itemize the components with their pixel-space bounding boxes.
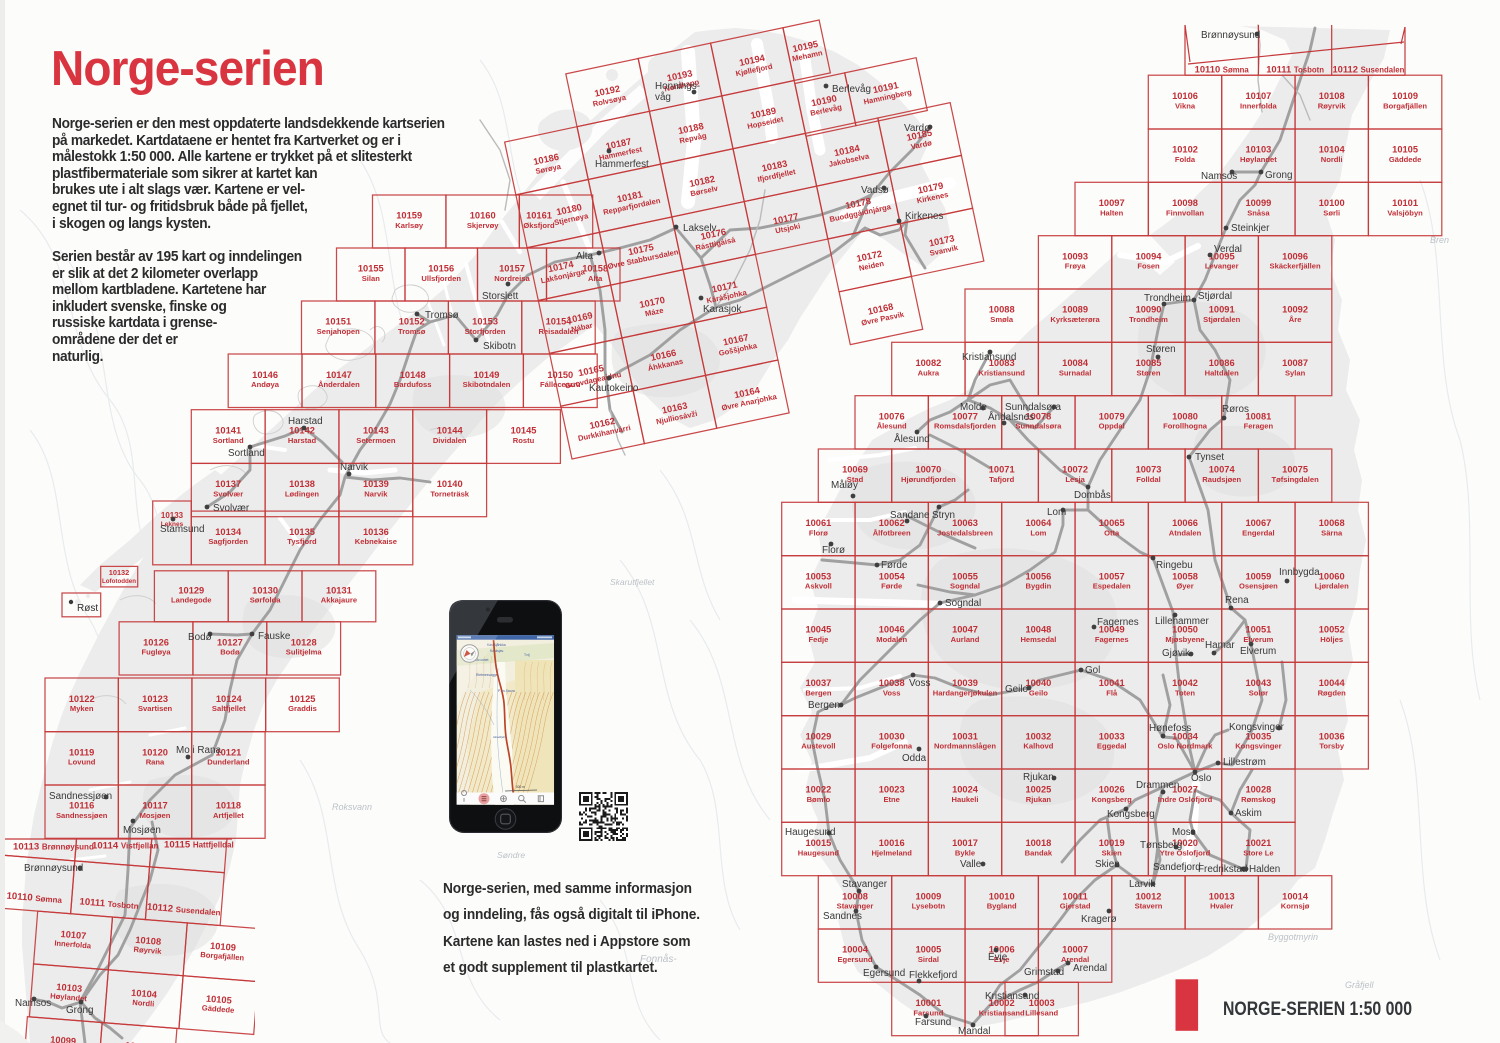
- svg-text:Farsund: Farsund: [913, 1008, 943, 1017]
- svg-text:Lom: Lom: [1030, 528, 1046, 537]
- svg-text:Silan: Silan: [362, 274, 381, 283]
- svg-text:10104: 10104: [1319, 145, 1346, 155]
- svg-text:Florø: Florø: [809, 528, 828, 537]
- svg-text:Tysfjord: Tysfjord: [287, 537, 317, 546]
- svg-text:Hjørundfjorden: Hjørundfjorden: [901, 475, 956, 484]
- svg-text:Storfjorden: Storfjorden: [465, 327, 506, 336]
- svg-text:Røst: Røst: [77, 603, 98, 614]
- svg-text:10043: 10043: [1245, 678, 1271, 688]
- svg-text:Smøla: Smøla: [990, 315, 1014, 324]
- svg-text:Askvoll: Askvoll: [805, 582, 832, 591]
- svg-text:Raudsjøen: Raudsjøen: [1202, 475, 1241, 484]
- svg-text:10148: 10148: [400, 370, 426, 380]
- svg-text:Rena: Rena: [1225, 595, 1249, 606]
- svg-text:Trondheim: Trondheim: [1129, 315, 1168, 324]
- svg-text:Vadsø: Vadsø: [861, 185, 889, 196]
- svg-text:Folgefonna: Folgefonna: [871, 742, 913, 751]
- svg-text:10098: 10098: [1172, 198, 1198, 208]
- svg-text:Odda: Odda: [902, 753, 927, 764]
- svg-text:Halden: Halden: [1249, 864, 1280, 875]
- svg-text:10126: 10126: [143, 637, 169, 647]
- svg-text:Mosjøen: Mosjøen: [140, 811, 171, 820]
- svg-text:10080: 10080: [1172, 411, 1198, 421]
- svg-text:Skarutfjellet: Skarutfjellet: [610, 577, 655, 587]
- svg-text:Berlevåg: Berlevåg: [832, 84, 871, 95]
- svg-text:Myken: Myken: [70, 704, 94, 713]
- svg-text:Harstad: Harstad: [288, 436, 317, 445]
- svg-text:Byggotmyrin: Byggotmyrin: [1268, 932, 1318, 942]
- svg-text:10061: 10061: [805, 518, 831, 528]
- svg-text:10008: 10008: [842, 891, 868, 901]
- svg-text:10007: 10007: [1062, 945, 1088, 955]
- svg-text:Måløy: Måløy: [831, 480, 858, 491]
- svg-text:10118: 10118: [216, 801, 241, 811]
- svg-text:Sulitjelma: Sulitjelma: [286, 648, 323, 657]
- svg-text:Mo i Rana: Mo i Rana: [176, 745, 222, 756]
- svg-text:Førde: Førde: [881, 560, 908, 571]
- svg-text:10012: 10012: [1136, 891, 1162, 901]
- svg-text:Sørli: Sørli: [1323, 208, 1340, 217]
- svg-text:Nordli: Nordli: [1321, 155, 1343, 164]
- svg-text:10029: 10029: [805, 731, 831, 741]
- svg-text:Hvaler: Hvaler: [1210, 902, 1233, 911]
- svg-text:Folldal: Folldal: [1136, 475, 1160, 484]
- svg-text:Molde: Molde: [960, 402, 987, 413]
- svg-text:Sirdal: Sirdal: [918, 955, 939, 964]
- svg-text:Stamsund: Stamsund: [160, 524, 204, 535]
- svg-text:Sortland: Sortland: [228, 448, 265, 459]
- svg-text:Egersund: Egersund: [863, 968, 905, 979]
- svg-text:Fugløya: Fugløya: [141, 648, 171, 657]
- svg-text:Sandnessjøen: Sandnessjøen: [49, 791, 112, 802]
- svg-text:Farsund: Farsund: [915, 1017, 951, 1028]
- svg-text:Skibotndalen: Skibotndalen: [463, 380, 511, 389]
- svg-text:10016: 10016: [879, 838, 905, 848]
- svg-text:Moss: Moss: [1172, 827, 1196, 838]
- svg-text:Hamar: Hamar: [1205, 640, 1235, 651]
- svg-text:10152: 10152: [399, 317, 425, 327]
- svg-text:Bodø: Bodø: [188, 632, 212, 643]
- svg-text:Lofotodden: Lofotodden: [102, 578, 136, 585]
- svg-text:Røgden: Røgden: [1318, 688, 1347, 697]
- svg-text:Ljørdalen: Ljørdalen: [1315, 582, 1350, 591]
- svg-text:Snåsa: Snåsa: [1247, 208, 1270, 217]
- svg-text:Kyrksæterøra: Kyrksæterøra: [1050, 315, 1100, 324]
- svg-text:10143: 10143: [363, 426, 389, 436]
- svg-text:10021: 10021: [1245, 838, 1271, 848]
- svg-text:Hammerfest: Hammerfest: [595, 159, 649, 170]
- svg-text:Stjørdal: Stjørdal: [1198, 291, 1232, 302]
- svg-text:Lillestrøm: Lillestrøm: [1223, 757, 1266, 768]
- svg-text:Rjukan: Rjukan: [1023, 772, 1054, 783]
- svg-text:10048: 10048: [1025, 625, 1051, 635]
- svg-text:10105: 10105: [1392, 145, 1418, 155]
- svg-text:Tøfsingdalen: Tøfsingdalen: [1271, 475, 1319, 484]
- svg-text:Flekkefjord: Flekkefjord: [909, 970, 957, 981]
- svg-text:Bømlo: Bømlo: [807, 795, 831, 804]
- svg-text:10109: 10109: [1392, 91, 1418, 101]
- svg-text:Stryn: Stryn: [932, 510, 955, 521]
- svg-text:10066: 10066: [1172, 518, 1198, 528]
- svg-text:Kongsvinger: Kongsvinger: [1235, 742, 1281, 751]
- svg-text:10119: 10119: [69, 747, 94, 757]
- svg-text:Lillehammer: Lillehammer: [1155, 616, 1209, 627]
- svg-text:10132: 10132: [109, 568, 130, 577]
- svg-text:10138: 10138: [289, 479, 315, 489]
- svg-text:10087: 10087: [1282, 358, 1308, 368]
- svg-text:Egersund: Egersund: [837, 955, 872, 964]
- svg-text:Ånderdalen: Ånderdalen: [318, 380, 360, 389]
- svg-text:Geilo: Geilo: [1005, 684, 1029, 695]
- svg-text:10082: 10082: [915, 358, 941, 368]
- svg-text:Akselfjell: Akselfjell: [493, 735, 505, 739]
- svg-text:10053: 10053: [805, 571, 831, 581]
- svg-text:Geilo: Geilo: [1029, 688, 1048, 697]
- svg-text:Svolvær: Svolvær: [213, 489, 243, 498]
- svg-text:Førde: Førde: [881, 582, 902, 591]
- svg-text:Valle: Valle: [960, 859, 982, 870]
- svg-text:Grong: Grong: [66, 1005, 93, 1016]
- svg-text:Rjukan: Rjukan: [1026, 795, 1052, 804]
- svg-text:Karasjok: Karasjok: [703, 304, 741, 315]
- svg-text:10026: 10026: [1099, 785, 1125, 795]
- svg-text:Haltdalen: Haltdalen: [1205, 368, 1240, 377]
- svg-text:10079: 10079: [1099, 411, 1125, 421]
- svg-text:Brønnøysund: Brønnøysund: [1201, 30, 1260, 41]
- svg-text:10045: 10045: [805, 625, 831, 635]
- svg-text:10059: 10059: [1245, 571, 1271, 581]
- svg-text:Tønsberg: Tønsberg: [1140, 840, 1182, 851]
- svg-text:Andøya: Andøya: [251, 380, 280, 389]
- svg-text:10114 Vistfjellan: 10114 Vistfjellan: [92, 841, 159, 852]
- svg-text:10036: 10036: [1319, 731, 1345, 741]
- svg-text:Namsos: Namsos: [15, 998, 51, 1009]
- svg-text:10091: 10091: [1209, 305, 1235, 315]
- svg-text:10108: 10108: [1319, 91, 1345, 101]
- svg-text:10054: 10054: [879, 571, 906, 581]
- svg-text:Bygland: Bygland: [987, 902, 1017, 911]
- svg-text:10038: 10038: [879, 678, 905, 688]
- svg-text:10157: 10157: [499, 264, 525, 274]
- svg-text:Skibotn: Skibotn: [483, 341, 516, 352]
- svg-text:10047: 10047: [952, 625, 978, 635]
- svg-text:Svolvær: Svolvær: [213, 503, 250, 514]
- svg-text:10074: 10074: [1209, 465, 1236, 475]
- svg-text:Øyer: Øyer: [1176, 582, 1193, 591]
- svg-text:Lysebotn: Lysebotn: [912, 902, 946, 911]
- svg-text:Evje: Evje: [988, 952, 1008, 963]
- svg-text:10115 Hattfjelldal: 10115 Hattfjelldal: [164, 840, 234, 851]
- svg-text:Røros: Røros: [1222, 404, 1249, 415]
- svg-text:10149: 10149: [474, 370, 500, 380]
- svg-text:Arendal: Arendal: [1073, 963, 1107, 974]
- svg-text:10100: 10100: [1319, 198, 1345, 208]
- svg-text:Støren: Støren: [1136, 368, 1160, 377]
- svg-text:10067: 10067: [1245, 518, 1271, 528]
- svg-text:Setermoen: Setermoen: [356, 436, 396, 445]
- svg-text:Tvtj: Tvtj: [524, 653, 530, 657]
- svg-text:10028: 10028: [1245, 785, 1271, 795]
- svg-text:Elverum: Elverum: [1243, 635, 1273, 644]
- svg-text:10023: 10023: [879, 785, 905, 795]
- svg-text:Stavern: Stavern: [1135, 902, 1163, 911]
- svg-text:10139: 10139: [363, 479, 389, 489]
- svg-text:10085: 10085: [1136, 358, 1162, 368]
- svg-text:Honnings-: Honnings-: [655, 81, 700, 92]
- svg-text:Frøya: Frøya: [1065, 262, 1086, 271]
- svg-text:Romsdalsfjorden: Romsdalsfjorden: [934, 422, 996, 431]
- svg-text:Ålfotbreen: Ålfotbreen: [873, 528, 911, 537]
- svg-text:Trondheim: Trondheim: [1144, 293, 1191, 304]
- svg-text:Särna: Särna: [1321, 528, 1343, 537]
- svg-text:Bergen: Bergen: [805, 688, 832, 697]
- svg-text:10092: 10092: [1282, 305, 1308, 315]
- svg-text:10096: 10096: [1282, 251, 1308, 261]
- svg-text:Narvik: Narvik: [340, 462, 368, 473]
- svg-text:Askim: Askim: [1235, 808, 1262, 819]
- svg-text:Haukeli: Haukeli: [951, 795, 978, 804]
- svg-text:10004: 10004: [842, 945, 869, 955]
- svg-text:10158: 10158: [582, 264, 608, 274]
- svg-text:Steinkjer: Steinkjer: [1231, 223, 1270, 234]
- svg-text:10113 Brønnøysund: 10113 Brønnøysund: [13, 842, 94, 853]
- svg-text:10161: 10161: [526, 211, 552, 221]
- svg-text:10041: 10041: [1099, 678, 1125, 688]
- svg-text:10001: 10001: [915, 998, 941, 1008]
- svg-text:Mosjøen: Mosjøen: [123, 825, 161, 836]
- svg-text:Lakselv: Lakselv: [683, 223, 717, 234]
- svg-text:Kristiansund: Kristiansund: [978, 368, 1025, 377]
- svg-text:10141: 10141: [215, 426, 241, 436]
- svg-text:Halten: Halten: [1100, 208, 1124, 217]
- svg-text:10060: 10060: [1319, 571, 1345, 581]
- svg-text:10124: 10124: [216, 694, 243, 704]
- svg-text:Storslett: Storslett: [482, 291, 518, 302]
- svg-text:Sandefjord: Sandefjord: [1153, 862, 1201, 873]
- svg-text:10052: 10052: [1319, 625, 1345, 635]
- svg-text:Borgafjällen: Borgafjällen: [200, 950, 245, 962]
- svg-text:Flå: Flå: [1106, 688, 1118, 697]
- svg-text:10116: 10116: [69, 801, 94, 811]
- svg-text:10065: 10065: [1099, 518, 1125, 528]
- svg-text:10094: 10094: [1136, 251, 1163, 261]
- svg-text:Bandak: Bandak: [1025, 848, 1053, 857]
- svg-text:10024: 10024: [952, 785, 979, 795]
- svg-text:Austevoll: Austevoll: [801, 742, 835, 751]
- svg-text:Etne: Etne: [883, 795, 899, 804]
- svg-text:Kongsberg: Kongsberg: [1107, 809, 1155, 820]
- svg-text:10150: 10150: [547, 370, 573, 380]
- svg-text:10076: 10076: [879, 411, 905, 421]
- svg-text:10015: 10015: [805, 838, 831, 848]
- svg-text:Lom: Lom: [1047, 507, 1066, 518]
- svg-text:10055: 10055: [952, 571, 978, 581]
- svg-text:NORGE-SERIEN 1:50 000: NORGE-SERIEN 1:50 000: [1223, 998, 1412, 1020]
- svg-text:Bykle: Bykle: [955, 848, 975, 857]
- svg-text:10130: 10130: [252, 585, 278, 595]
- svg-text:Aukra: Aukra: [918, 368, 940, 377]
- svg-text:Tromsø: Tromsø: [398, 327, 426, 336]
- svg-text:Rømskog: Rømskog: [1241, 795, 1276, 804]
- svg-text:Kornsjø: Kornsjø: [1281, 902, 1310, 911]
- svg-text:Tromsø: Tromsø: [425, 310, 459, 321]
- svg-text:Alta: Alta: [588, 274, 603, 283]
- svg-text:Fedje: Fedje: [808, 635, 828, 644]
- svg-text:10030: 10030: [879, 731, 905, 741]
- svg-text:Narvik: Narvik: [364, 489, 388, 498]
- svg-text:Ullsfjorden: Ullsfjorden: [421, 274, 461, 283]
- svg-text:10032: 10032: [1025, 731, 1051, 741]
- svg-text:Alta: Alta: [576, 251, 594, 262]
- svg-text:Senjahopen: Senjahopen: [317, 327, 360, 336]
- svg-text:Folda: Folda: [1175, 155, 1196, 164]
- svg-text:10129: 10129: [178, 585, 204, 595]
- svg-text:Tafjord: Tafjord: [989, 475, 1015, 484]
- svg-text:Bren: Bren: [1430, 235, 1449, 245]
- svg-text:10099: 10099: [50, 1035, 77, 1043]
- svg-text:Kongsberg: Kongsberg: [1092, 795, 1132, 804]
- svg-text:10128: 10128: [291, 637, 317, 647]
- svg-text:Namsos: Namsos: [1201, 171, 1237, 182]
- svg-text:Ålesund: Ålesund: [877, 422, 907, 431]
- svg-text:Sandnes: Sandnes: [823, 911, 862, 922]
- svg-text:10110 Sømna: 10110 Sømna: [1195, 64, 1250, 75]
- svg-text:10069: 10069: [842, 465, 868, 475]
- svg-text:10137: 10137: [215, 479, 241, 489]
- svg-text:Aurland: Aurland: [951, 635, 980, 644]
- svg-text:10075: 10075: [1282, 465, 1308, 475]
- svg-text:10086: 10086: [1209, 358, 1235, 368]
- svg-text:Innerfolda: Innerfolda: [1240, 101, 1277, 110]
- svg-text:10057: 10057: [1099, 571, 1125, 581]
- svg-text:Artfjellet: Artfjellet: [213, 811, 244, 820]
- svg-text:Höljes: Höljes: [1320, 635, 1343, 644]
- svg-text:Sylan: Sylan: [1285, 368, 1306, 377]
- svg-text:10135: 10135: [289, 527, 315, 537]
- svg-text:Elverum: Elverum: [1240, 646, 1276, 657]
- svg-text:Nordmannslågen: Nordmannslågen: [934, 742, 996, 751]
- svg-text:Innbygda: Innbygda: [1279, 567, 1320, 578]
- svg-text:Verdal: Verdal: [1214, 244, 1242, 255]
- svg-text:10019: 10019: [1099, 838, 1125, 848]
- svg-text:10025: 10025: [1025, 785, 1051, 795]
- svg-text:Gjerstad: Gjerstad: [1060, 902, 1091, 911]
- svg-text:Kebnekaise: Kebnekaise: [355, 537, 397, 546]
- svg-text:Valsjöbyn: Valsjöbyn: [1387, 208, 1423, 217]
- svg-text:P. m-Saura: P. m-Saura: [498, 689, 515, 693]
- svg-text:Nordli: Nordli: [132, 998, 155, 1009]
- svg-text:Søndre: Søndre: [497, 850, 525, 860]
- svg-text:10120: 10120: [142, 747, 168, 757]
- svg-text:Lillesand: Lillesand: [1025, 1008, 1058, 1017]
- svg-text:10010: 10010: [989, 891, 1015, 901]
- svg-text:Kragerø: Kragerø: [1081, 914, 1117, 925]
- svg-text:10071: 10071: [989, 465, 1015, 475]
- svg-text:10153: 10153: [472, 317, 498, 327]
- svg-text:Gäddede: Gäddede: [1389, 155, 1422, 164]
- svg-text:Skien: Skien: [1095, 859, 1120, 870]
- svg-text:10090: 10090: [1136, 305, 1162, 315]
- svg-text:10068: 10068: [1319, 518, 1345, 528]
- svg-text:Stavanger: Stavanger: [842, 879, 888, 890]
- svg-text:Gjøvik: Gjøvik: [1162, 648, 1190, 659]
- svg-text:Kongsvinger: Kongsvinger: [1229, 722, 1285, 733]
- svg-text:10088: 10088: [989, 305, 1015, 315]
- svg-text:10084: 10084: [1062, 358, 1089, 368]
- svg-text:10101: 10101: [1392, 198, 1418, 208]
- svg-text:Fosen: Fosen: [1137, 262, 1160, 271]
- svg-text:Lesja: Lesja: [1065, 475, 1085, 484]
- svg-text:Rana: Rana: [146, 758, 165, 767]
- svg-text:10117: 10117: [142, 801, 167, 811]
- svg-text:Store Le: Store Le: [1243, 848, 1273, 857]
- svg-text:Sørfolda: Sørfolda: [250, 596, 282, 605]
- svg-text:Hardangerjøkulen: Hardangerjøkulen: [933, 688, 998, 697]
- svg-text:Osensjøen: Osensjøen: [1239, 582, 1278, 591]
- svg-text:10123: 10123: [142, 694, 168, 704]
- svg-text:10151: 10151: [325, 317, 351, 327]
- svg-text:Bodø: Bodø: [220, 648, 240, 657]
- svg-text:Vikna: Vikna: [1175, 101, 1196, 110]
- svg-text:Saltfjellet: Saltfjellet: [212, 704, 246, 713]
- svg-text:Mandal: Mandal: [958, 1026, 990, 1037]
- svg-text:10017: 10017: [952, 838, 978, 848]
- svg-text:Røyrvik: Røyrvik: [1318, 101, 1347, 110]
- svg-text:10097: 10097: [1099, 198, 1125, 208]
- svg-text:10103: 10103: [1245, 145, 1271, 155]
- svg-text:våg: våg: [655, 92, 671, 103]
- svg-text:Gråfjell: Gråfjell: [1345, 980, 1375, 990]
- svg-text:Sagfjorden: Sagfjorden: [208, 537, 248, 546]
- svg-text:Voss: Voss: [883, 688, 901, 697]
- svg-text:Ringebu: Ringebu: [1156, 560, 1193, 571]
- svg-text:10140: 10140: [437, 479, 463, 489]
- svg-text:Haugesund: Haugesund: [798, 848, 840, 857]
- svg-text:Roksvann: Roksvann: [332, 802, 372, 812]
- svg-text:10147: 10147: [326, 370, 352, 380]
- svg-text:10022: 10022: [805, 785, 831, 795]
- svg-text:Sogndal: Sogndal: [950, 582, 980, 591]
- svg-text:10155: 10155: [358, 264, 384, 274]
- svg-text:10018: 10018: [1025, 838, 1051, 848]
- svg-text:10102: 10102: [1172, 145, 1198, 155]
- svg-text:10111 Tosbotn: 10111 Tosbotn: [1266, 64, 1324, 75]
- svg-text:Engerdal: Engerdal: [1242, 528, 1275, 537]
- svg-text:Hønefoss: Hønefoss: [1149, 723, 1191, 734]
- svg-text:10145: 10145: [511, 426, 537, 436]
- svg-text:Tynset: Tynset: [1195, 452, 1224, 463]
- svg-text:10039: 10039: [952, 678, 978, 688]
- svg-text:Gäddede: Gäddede: [202, 1003, 235, 1015]
- svg-text:Levanger: Levanger: [1205, 262, 1239, 271]
- svg-text:10044: 10044: [1319, 678, 1346, 688]
- svg-text:10072: 10072: [1062, 465, 1088, 475]
- svg-text:Atndalen: Atndalen: [1169, 528, 1202, 537]
- svg-text:Dombås: Dombås: [1074, 490, 1111, 501]
- svg-text:10011: 10011: [1062, 891, 1087, 901]
- svg-text:Skjervøy: Skjervøy: [467, 221, 499, 230]
- svg-text:10125: 10125: [290, 694, 316, 704]
- svg-text:Larvik: Larvik: [1129, 879, 1155, 890]
- svg-text:10106: 10106: [1172, 91, 1198, 101]
- svg-text:Bardufoss: Bardufoss: [394, 380, 432, 389]
- svg-text:10127: 10127: [217, 637, 243, 647]
- svg-text:Hemsedal: Hemsedal: [1020, 635, 1056, 644]
- svg-text:Nordreisa: Nordreisa: [494, 274, 530, 283]
- svg-text:10051: 10051: [1245, 625, 1271, 635]
- svg-text:10013: 10013: [1209, 891, 1235, 901]
- svg-text:10131: 10131: [326, 585, 352, 595]
